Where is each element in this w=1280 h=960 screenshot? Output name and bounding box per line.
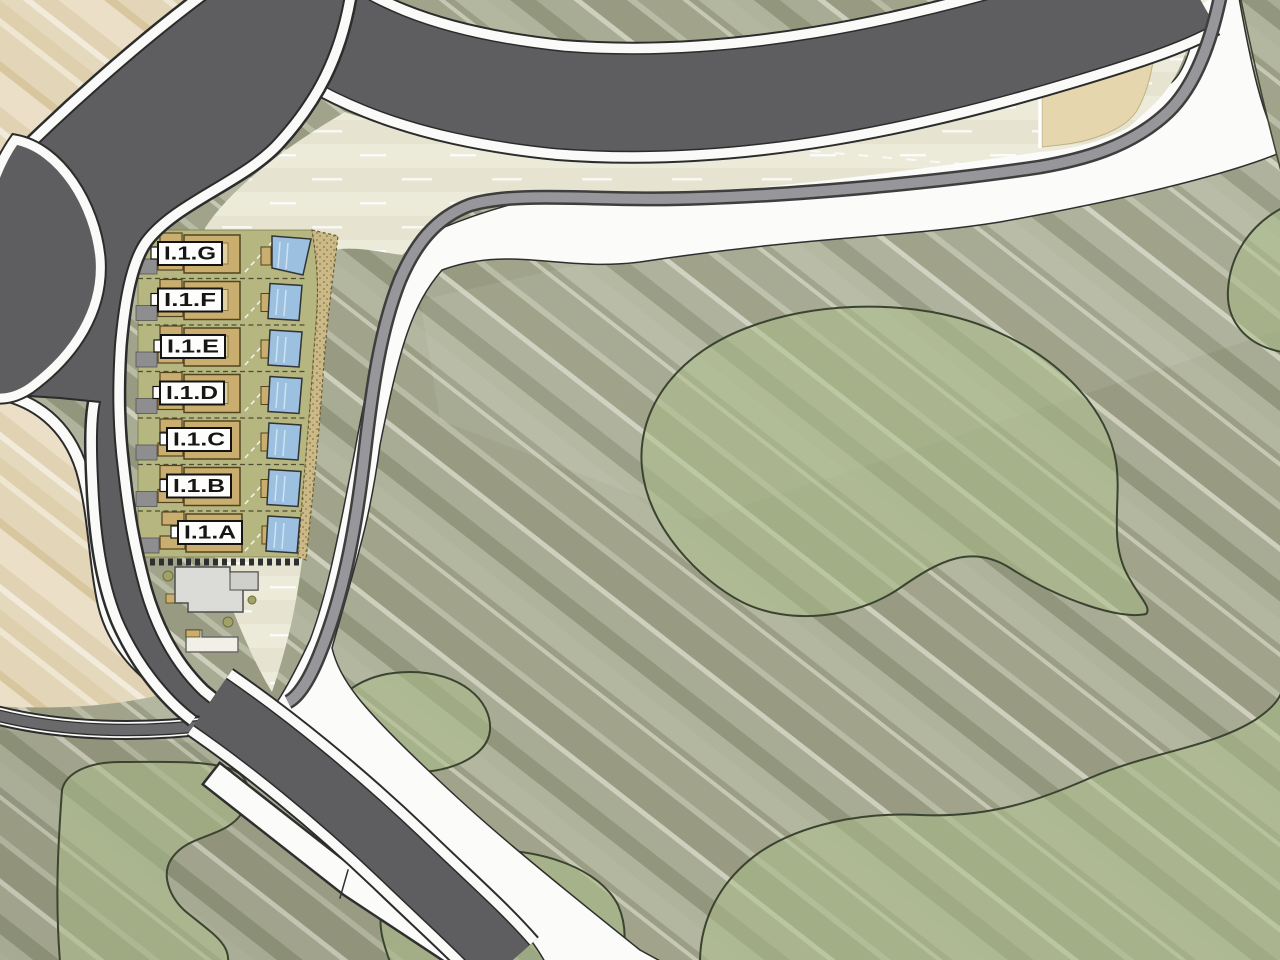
site-plan-map: I.1.G I.1.F (0, 0, 1280, 960)
villa-label: I.1.C (173, 430, 225, 450)
shrub (163, 571, 173, 581)
villa-label: I.1.A (184, 523, 236, 543)
site-plan: I.1.G I.1.F (0, 0, 1280, 960)
shrub (223, 617, 233, 627)
villa-plots: I.1.G I.1.F (136, 230, 338, 562)
shrub (248, 596, 256, 604)
villa-label: I.1.B (173, 476, 225, 496)
building-footprint-wing (230, 572, 258, 590)
villa-label: I.1.D (166, 383, 218, 403)
villa-label: I.1.G (164, 244, 216, 264)
villa-label: I.1.F (164, 290, 216, 310)
villa-label: I.1.E (167, 337, 219, 357)
